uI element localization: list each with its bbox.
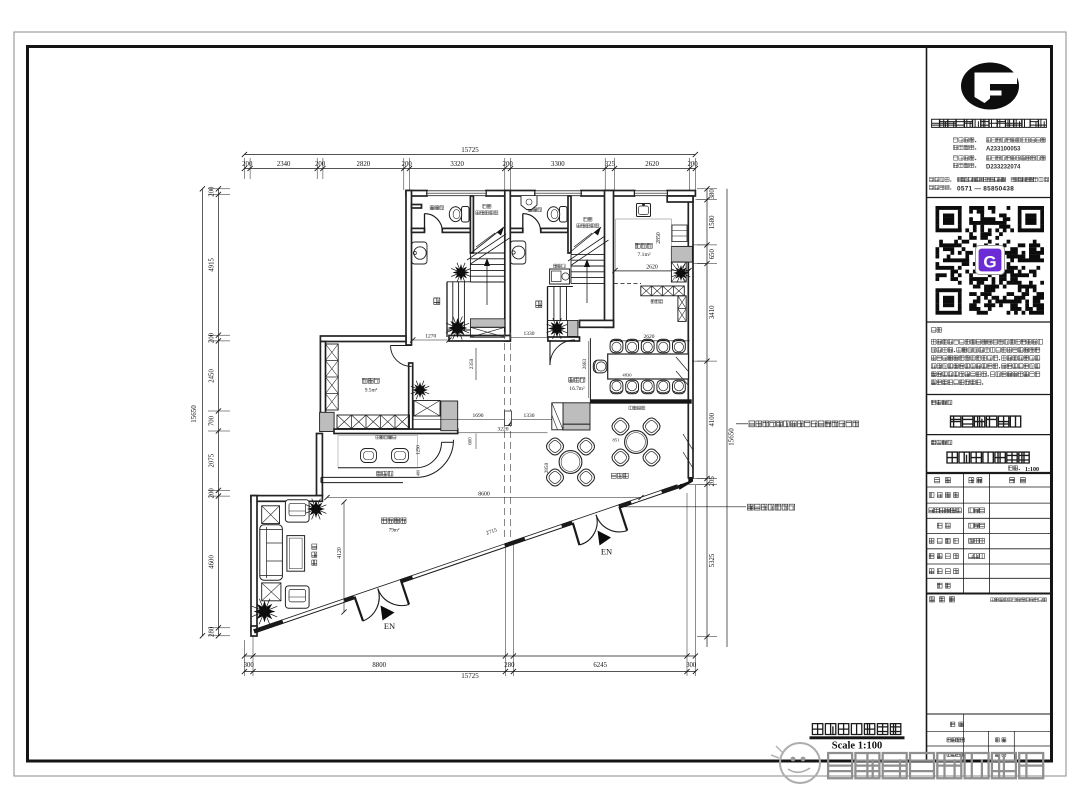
svg-text:5325: 5325 bbox=[709, 553, 716, 567]
svg-text:7.1m²: 7.1m² bbox=[637, 252, 650, 258]
svg-text:325: 325 bbox=[605, 161, 616, 168]
svg-text:4915: 4915 bbox=[209, 257, 216, 271]
svg-text:2620: 2620 bbox=[644, 334, 655, 340]
svg-text:6245: 6245 bbox=[593, 662, 607, 669]
svg-text:200: 200 bbox=[315, 161, 326, 168]
svg-text:15725: 15725 bbox=[461, 672, 479, 680]
svg-text:1250: 1250 bbox=[417, 445, 422, 455]
svg-text:1330: 1330 bbox=[524, 413, 535, 419]
svg-text:2450: 2450 bbox=[209, 369, 216, 383]
svg-text:2850: 2850 bbox=[656, 232, 662, 244]
svg-text:G: G bbox=[983, 253, 996, 272]
svg-text:2850: 2850 bbox=[544, 462, 550, 473]
svg-text:1580: 1580 bbox=[709, 215, 716, 229]
svg-text:650: 650 bbox=[709, 249, 716, 260]
svg-text:EN: EN bbox=[601, 547, 612, 557]
svg-text:9.5m²: 9.5m² bbox=[365, 388, 378, 394]
svg-text:15650: 15650 bbox=[190, 405, 198, 423]
svg-text:200: 200 bbox=[242, 161, 253, 168]
svg-text:2620: 2620 bbox=[645, 161, 659, 168]
svg-text:3220: 3220 bbox=[498, 426, 509, 432]
svg-text:Scale 1:100: Scale 1:100 bbox=[832, 741, 882, 752]
svg-text:D233232074: D233232074 bbox=[986, 165, 1021, 171]
svg-text:200: 200 bbox=[503, 161, 514, 168]
svg-text:3410: 3410 bbox=[709, 305, 716, 319]
svg-text:600: 600 bbox=[469, 437, 474, 445]
svg-text:2340: 2340 bbox=[277, 161, 291, 168]
svg-text:4600: 4600 bbox=[209, 555, 216, 569]
svg-text:15725: 15725 bbox=[461, 146, 479, 154]
svg-text:4100: 4100 bbox=[709, 412, 716, 426]
svg-text:1690: 1690 bbox=[473, 413, 484, 419]
svg-text:EN: EN bbox=[384, 621, 395, 631]
svg-text:1270: 1270 bbox=[425, 334, 436, 340]
svg-text:A233100053: A233100053 bbox=[986, 147, 1021, 153]
svg-text:480: 480 bbox=[416, 470, 421, 476]
svg-text:2350: 2350 bbox=[469, 358, 475, 369]
svg-text:200: 200 bbox=[209, 332, 216, 343]
svg-text:2683: 2683 bbox=[582, 358, 588, 369]
svg-text:4120: 4120 bbox=[337, 547, 343, 559]
svg-text:200: 200 bbox=[402, 161, 413, 168]
svg-text:700: 700 bbox=[209, 415, 216, 426]
svg-text:851: 851 bbox=[613, 438, 621, 443]
svg-text:200: 200 bbox=[687, 161, 698, 168]
svg-text:380: 380 bbox=[709, 189, 716, 200]
svg-text:16.7m²: 16.7m² bbox=[569, 386, 585, 392]
svg-text:2820: 2820 bbox=[357, 161, 371, 168]
svg-text:79m²: 79m² bbox=[389, 528, 400, 534]
svg-text:200: 200 bbox=[209, 186, 216, 197]
svg-text:3300: 3300 bbox=[551, 161, 565, 168]
svg-text:4830: 4830 bbox=[622, 373, 632, 378]
svg-text:8800: 8800 bbox=[372, 662, 386, 669]
svg-text:1330: 1330 bbox=[524, 331, 535, 337]
svg-text:3320: 3320 bbox=[450, 161, 464, 168]
svg-text:8600: 8600 bbox=[478, 492, 490, 498]
svg-text:15650: 15650 bbox=[728, 428, 736, 446]
svg-text:0571 — 85850438: 0571 — 85850438 bbox=[957, 186, 1014, 193]
svg-text:2075: 2075 bbox=[209, 453, 216, 467]
svg-text:205: 205 bbox=[709, 476, 716, 487]
svg-text:280: 280 bbox=[209, 626, 216, 637]
svg-text:200: 200 bbox=[209, 488, 216, 499]
svg-text:2620: 2620 bbox=[646, 265, 658, 271]
